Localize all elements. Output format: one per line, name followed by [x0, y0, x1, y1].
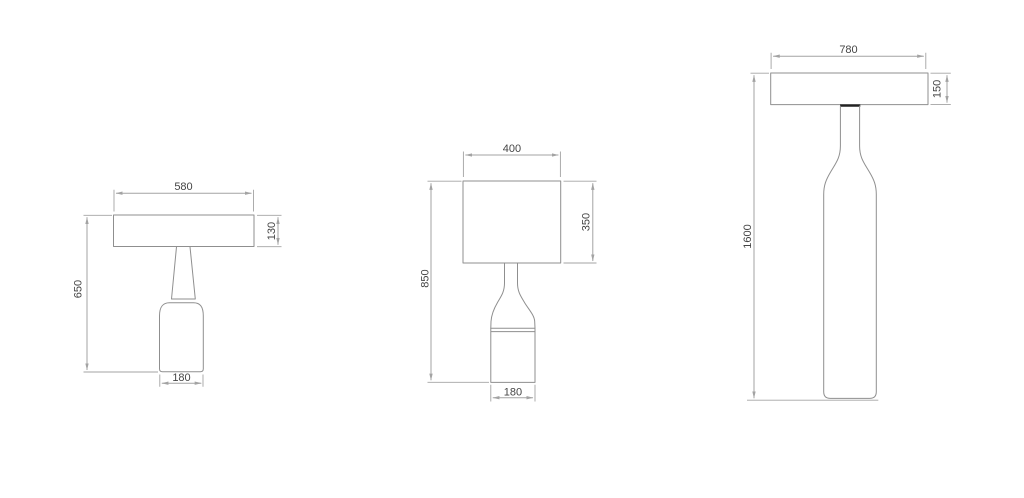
dimension-label-shade-width: 580 — [174, 181, 192, 193]
lamp-neck-outline — [172, 247, 196, 299]
lamp-body-outline — [160, 303, 204, 372]
technical-drawing-sheet: 580 130 650 180 — [0, 0, 1024, 498]
drawing-table-lamp-small: 580 130 650 180 — [72, 181, 281, 387]
dimension-shade-height: 350 — [564, 181, 597, 263]
dimension-label-shade-width: 780 — [839, 44, 857, 56]
drawing-floor-lamp: 780 150 1600 — [742, 44, 951, 400]
lampshade-outline — [771, 73, 928, 105]
dimension-label-overall-height: 850 — [419, 269, 431, 287]
dimension-shade-height: 150 — [931, 73, 951, 104]
lamp-neck-right-outline — [518, 263, 536, 328]
dimension-label-shade-height: 350 — [580, 213, 592, 231]
lamp-body-outline — [824, 106, 877, 398]
dimension-shade-width: 580 — [114, 181, 254, 212]
dimension-shade-width: 400 — [463, 143, 560, 177]
dimension-label-shade-height: 130 — [266, 222, 278, 240]
dimension-label-base-width: 180 — [172, 372, 190, 384]
dimension-shade-width: 780 — [771, 44, 926, 69]
dimension-shade-height: 130 — [257, 215, 282, 246]
dimension-overall-height: 650 — [72, 215, 158, 372]
extension-lines — [428, 181, 490, 382]
lampshade-outline — [114, 215, 255, 247]
drawing-canvas: 580 130 650 180 — [0, 0, 1024, 498]
dimension-label-shade-width: 400 — [503, 143, 521, 155]
dimension-overall-height: 850 — [419, 181, 489, 382]
dimension-label-base-width: 180 — [504, 387, 522, 399]
lamp-neck-left-outline — [491, 263, 505, 328]
lampshade-outline — [463, 181, 561, 263]
dimension-label-overall-height: 1600 — [742, 224, 754, 248]
dimension-label-overall-height: 650 — [72, 280, 84, 298]
lamp-base-outline — [491, 328, 535, 382]
dimension-overall-height: 1600 — [742, 73, 878, 400]
dimension-label-shade-height: 150 — [932, 80, 944, 98]
extension-lines — [84, 215, 159, 372]
extension-lines — [747, 73, 878, 400]
dimension-base-width: 180 — [491, 385, 535, 402]
dimension-base-width: 180 — [160, 372, 203, 387]
drawing-table-lamp-medium: 400 350 850 180 — [419, 143, 596, 402]
